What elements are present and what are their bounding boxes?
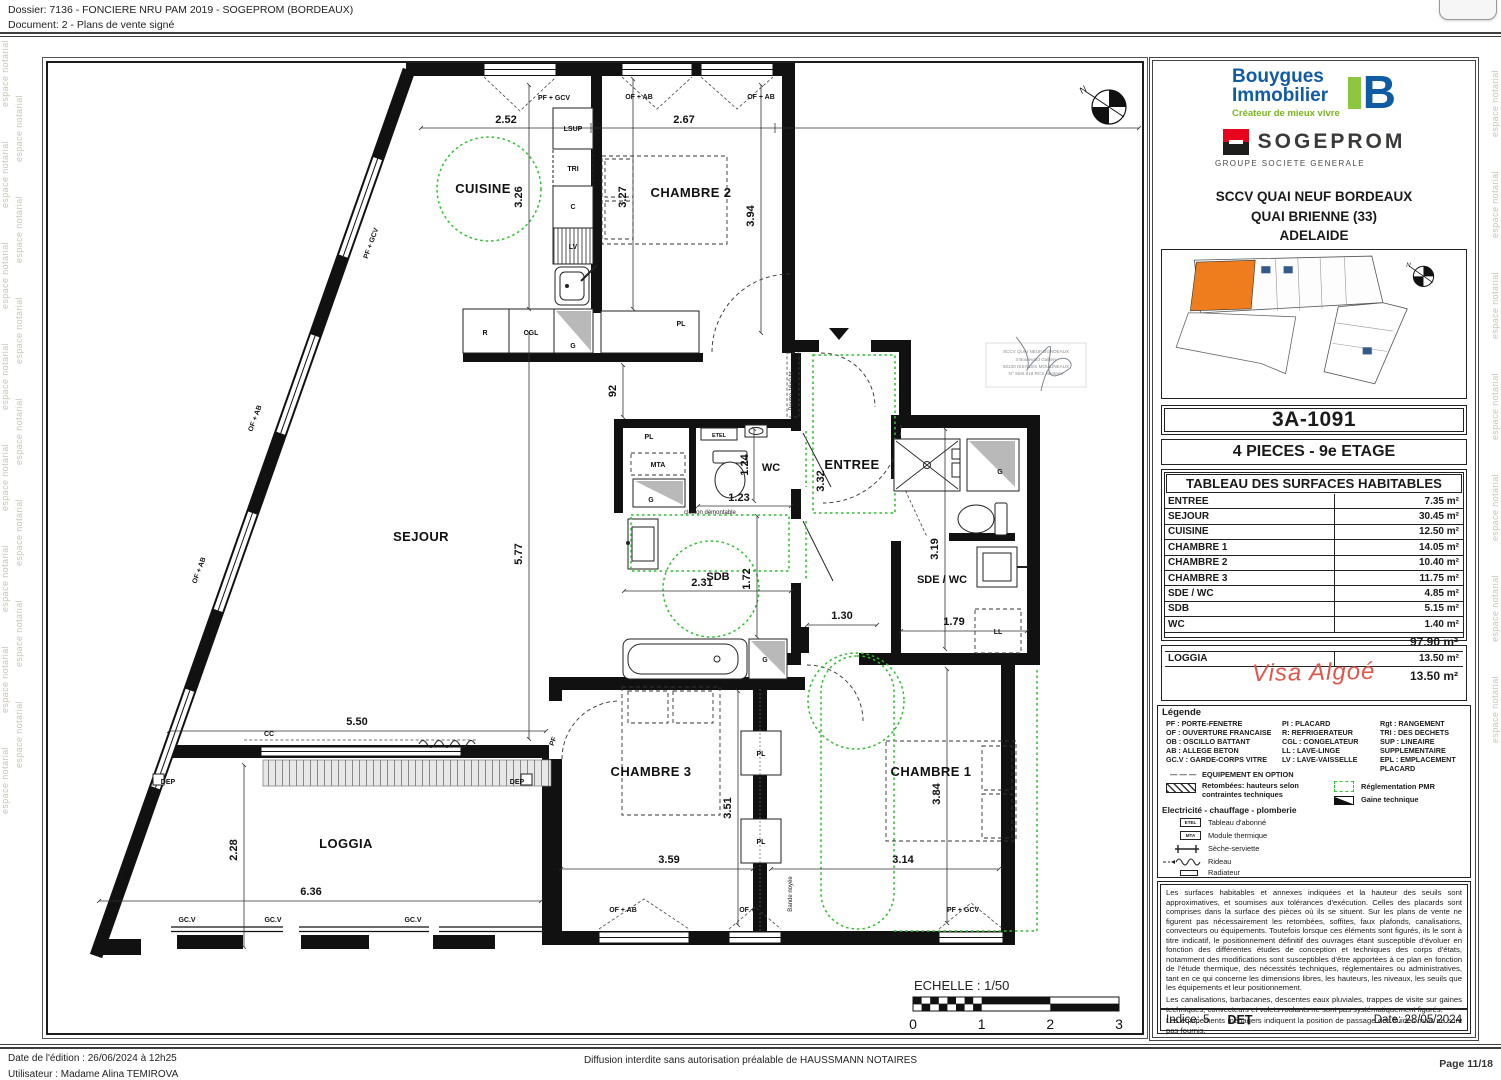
- svg-text:N: N: [1406, 262, 1411, 269]
- highlighted-unit: [1190, 260, 1255, 311]
- document-line: Document: 2 - Plans de vente signé: [8, 18, 353, 33]
- scale-label: ECHELLE : 1/50: [914, 978, 1009, 993]
- legal-paragraph-1: Les surfaces habitables et annexes indiq…: [1166, 888, 1462, 993]
- bouygues-name-2: Immobilier: [1232, 86, 1340, 105]
- equipment-label: C: [570, 204, 575, 211]
- sogeprom-logo: SOGEPROM: [1161, 129, 1467, 155]
- watermark-column-left1: espace notarial espace notarial espace n…: [1, 40, 10, 814]
- opening-label: OF + AB: [625, 94, 653, 101]
- watermark-text: espace notarial: [15, 95, 24, 162]
- promoter-stamp: SCCV QUAI NEUF BORDEAUX 3 Boulevard Gall…: [986, 337, 1086, 391]
- equipment-label: G: [997, 469, 1003, 476]
- watermark-text: espace notarial: [1491, 171, 1500, 238]
- footer-separator-thin: [0, 1044, 1501, 1045]
- dim-label: 1.23: [728, 492, 749, 504]
- opening-label: OF + AB: [248, 404, 264, 432]
- option-dashes: — — —: [1170, 770, 1196, 779]
- viewer-corner-button[interactable]: [1439, 0, 1497, 20]
- project-line-2: QUAI BRIENNE (33): [1161, 207, 1467, 227]
- opening-label: PF + GCV: [363, 227, 381, 260]
- opening-label: OF + AB: [739, 907, 767, 914]
- scale-bar: ECHELLE : 1/50 0 1 2 3: [909, 978, 1123, 1032]
- watermark-text: espace notarial: [15, 297, 24, 364]
- watermark-text: espace notarial: [1, 343, 10, 410]
- room-label-loggia: LOGGIA: [319, 836, 373, 851]
- room-label-wc: WC: [762, 462, 780, 474]
- dim-label: 2.67: [673, 114, 694, 126]
- project-line-1: SCCV QUAI NEUF BORDEAUX: [1161, 187, 1467, 207]
- table-row: SDB5.15 m²: [1165, 602, 1463, 617]
- scale-tick: 3: [1115, 1016, 1123, 1032]
- equipment-label: PL: [757, 751, 767, 758]
- room-label-sdb: SDB: [706, 571, 729, 583]
- room-label-chambre1: CHAMBRE 1: [891, 764, 972, 779]
- table-row: SDE / WC4.85 m²: [1165, 586, 1463, 601]
- header-separator-thin: [0, 36, 1501, 37]
- footer-diffusion: Diffusion interdite sans autorisation pr…: [0, 1055, 1501, 1066]
- equipment-label: TRI: [567, 166, 578, 173]
- room-label-chambre2: CHAMBRE 2: [651, 185, 732, 200]
- legend-retombees: Retombées: hauteurs selon: [1202, 781, 1299, 790]
- opening-label: OF + AB: [609, 907, 637, 914]
- table-row: CUISINE12.50 m²: [1165, 525, 1463, 540]
- opening-label: OF + AB: [747, 94, 775, 101]
- dim-label: 1.30: [831, 610, 852, 622]
- dim-label: 1.79: [943, 616, 964, 628]
- legend-gaine: Gaine technique: [1361, 795, 1419, 804]
- dim-label: 3.51: [722, 797, 734, 818]
- dim-label: 2.28: [228, 839, 240, 860]
- dim-label: 3.94: [745, 204, 757, 226]
- lot-code-box: 3A-1091: [1161, 405, 1467, 435]
- compass-icon: N: [1077, 83, 1126, 124]
- etel-icon: ETEL: [1180, 818, 1201, 827]
- visa-stamp: Visa Algoé: [1252, 658, 1376, 688]
- dossier-line: Dossier: 7136 - FONCIERE NRU PAM 2019 - …: [8, 3, 353, 18]
- watermark-text: espace notarial: [1, 747, 10, 814]
- dim-label: 5.77: [513, 543, 525, 564]
- dim-label: 1.24: [739, 453, 751, 475]
- bouygues-logo: Bouygues Immobilier Créateur de mieux vi…: [1161, 67, 1467, 119]
- watermark-text: espace notarial: [1, 646, 10, 713]
- dim-label: 3.59: [658, 854, 679, 866]
- watermark-text: espace notarial: [1491, 676, 1500, 743]
- opening-label: OF + AB: [192, 556, 208, 584]
- key-plan-drawing: N: [1162, 250, 1466, 398]
- room-label-sejour: SEJOUR: [393, 529, 449, 544]
- key-plan-thumbnail: N: [1161, 249, 1467, 399]
- dim-label: 3.84: [931, 782, 943, 804]
- dim-label: 3.14: [892, 854, 914, 866]
- radiateur-icon: [1180, 870, 1198, 876]
- retombees-icon: [1166, 783, 1196, 793]
- legal-box: Les surfaces habitables et annexes indiq…: [1157, 881, 1471, 1034]
- visa-box: Visa Algoé: [1161, 645, 1467, 701]
- floor-plan-drawing: 2.52 2.67 3.26 3.27 3.94 5.77 92 1.24 1.…: [48, 63, 1146, 1037]
- surface-table: TABLEAU DES SURFACES HABITABLES ENTREE7.…: [1161, 469, 1467, 641]
- table-row: CHAMBRE 114.05 m²: [1165, 540, 1463, 555]
- scale-tick: 2: [1046, 1016, 1054, 1032]
- dim-label: 1.72: [741, 568, 753, 589]
- equipment-label: CC: [264, 731, 274, 738]
- north-label: N: [1077, 83, 1088, 95]
- equipment-label: G: [648, 497, 654, 504]
- watermark-text: espace notarial: [1491, 373, 1500, 440]
- table-row: CHAMBRE 210.40 m²: [1165, 556, 1463, 571]
- dim-label: 3.32: [815, 470, 827, 491]
- project-line-3: ADELAIDE: [1161, 226, 1467, 246]
- rideau-icon: [1162, 856, 1204, 867]
- dim-label: 6.36: [300, 886, 321, 898]
- plan-frame: 2.52 2.67 3.26 3.27 3.94 5.77 92 1.24 1.…: [42, 57, 1148, 1039]
- date-value: Date: 28/05/2024: [1374, 1014, 1462, 1026]
- legend-electricite: Electricité - chauffage - plomberie: [1162, 805, 1297, 815]
- equipment-label: PL: [677, 321, 687, 328]
- footer-separator: [0, 1047, 1501, 1049]
- equipment-label: DEP: [161, 779, 176, 786]
- watermark-column-right: espace notarial espace notarial espace n…: [1491, 70, 1500, 743]
- pmr-icon: [1334, 781, 1354, 792]
- railing-label: GC.V: [404, 917, 421, 924]
- equipment-label: DEP: [510, 779, 525, 786]
- bouygues-name-1: Bouygues: [1232, 67, 1340, 86]
- watermark-text: espace notarial: [1, 444, 10, 511]
- watermark-text: espace notarial: [1, 545, 10, 612]
- legend-col2: PI : PLACARDR: REFRIGERATEURCGL : CONGEL…: [1282, 719, 1358, 764]
- sogeprom-name: SOGEPROM: [1258, 130, 1406, 154]
- project-name: SCCV QUAI NEUF BORDEAUX QUAI BRIENNE (33…: [1161, 187, 1467, 246]
- watermark-text: espace notarial: [1491, 474, 1500, 541]
- lot-code: 3A-1091: [1272, 408, 1356, 432]
- legend-mta: Module thermique: [1208, 831, 1267, 840]
- legend-retombees2: contraintes techniques: [1202, 790, 1283, 799]
- lot-type: 4 PIECES - 9e ETAGE: [1233, 443, 1395, 461]
- header-separator: [0, 32, 1501, 34]
- watermark-text: espace notarial: [1491, 272, 1500, 339]
- kitchen-fixtures: [437, 108, 699, 353]
- dim-label: 3.26: [513, 186, 525, 207]
- indice-value: Indice: 5: [1166, 1014, 1209, 1026]
- opening-label: PF + GCV: [538, 95, 570, 102]
- equipment-label: LV: [569, 244, 578, 251]
- note-label: Bande noyée: [788, 876, 794, 912]
- watermark-text: espace notarial: [1, 242, 10, 309]
- dim-label: 3.19: [929, 538, 941, 559]
- room-label-entree: ENTREE: [824, 457, 879, 472]
- equipment-label: LSUP: [564, 126, 583, 133]
- societe-generale-square-icon: [1223, 129, 1249, 155]
- plan-frame-inner: 2.52 2.67 3.26 3.27 3.94 5.77 92 1.24 1.…: [46, 61, 1144, 1035]
- legend-option: EQUIPEMENT EN OPTION: [1202, 770, 1294, 779]
- table-row: CHAMBRE 311.75 m²: [1165, 571, 1463, 586]
- watermark-text: espace notarial: [15, 600, 24, 667]
- table-row: ENTREE7.35 m²: [1165, 494, 1463, 509]
- legend-title: Légende: [1162, 707, 1201, 718]
- watermark-text: espace notarial: [15, 499, 24, 566]
- lot-type-box: 4 PIECES - 9e ETAGE: [1161, 439, 1467, 465]
- bouygues-mark-icon: B: [1348, 74, 1396, 111]
- legend-col1: PF : PORTE-FENETREOF : OUVERTURE FRANCAI…: [1166, 719, 1271, 764]
- table-row: WC1.40 m²: [1165, 617, 1463, 632]
- sogeprom-group-line: GROUPE SOCIETE GENERALE: [1215, 159, 1467, 168]
- watermark-text: espace notarial: [15, 398, 24, 465]
- room-label-sde-wc: SDE / WC: [917, 574, 967, 586]
- railing-label: GC.V: [178, 917, 195, 924]
- table-row: SEJOUR30.45 m²: [1165, 509, 1463, 524]
- legend-rideau: Rideau: [1208, 857, 1231, 866]
- equipment-label: G: [570, 343, 576, 350]
- equipment-label: ETEL: [712, 433, 727, 439]
- equipment-label: MTA: [651, 462, 666, 469]
- title-block-inner: Bouygues Immobilier Créateur de mieux vi…: [1152, 60, 1476, 1038]
- watermark-text: espace notarial: [1, 141, 10, 208]
- dim-label: 2.52: [495, 114, 516, 126]
- surface-table-title: TABLEAU DES SURFACES HABITABLES: [1166, 474, 1462, 493]
- logos-section: Bouygues Immobilier Créateur de mieux vi…: [1161, 67, 1467, 185]
- legend-box: Légende PF : PORTE-FENETREOF : OUVERTURE…: [1157, 705, 1471, 878]
- equipment-label: G: [762, 657, 768, 664]
- det-label: DET: [1227, 1013, 1252, 1027]
- equipment-label: LL: [994, 629, 1003, 636]
- room-label-chambre3: CHAMBRE 3: [611, 764, 692, 779]
- watermark-text: espace notarial: [1491, 575, 1500, 642]
- note-label: Poutre 16x0 ht: [789, 371, 795, 410]
- bouygues-tagline: Créateur de mieux vivre: [1232, 108, 1340, 119]
- equipment-label: PL: [757, 839, 767, 846]
- legend-seche: Sèche-serviette: [1208, 844, 1259, 853]
- document-page: Dossier: 7136 - FONCIERE NRU PAM 2019 - …: [0, 0, 1501, 1080]
- mta-icon: MTA: [1180, 831, 1201, 840]
- indice-row: Indice: 5 DET Date: 28/05/2024: [1161, 1008, 1467, 1030]
- watermark-text: espace notarial: [1491, 70, 1500, 137]
- page-number: Page 11/18: [1439, 1058, 1493, 1070]
- gaine-icon: [1334, 796, 1354, 805]
- equipment-label: CGL: [524, 330, 540, 337]
- document-header: Dossier: 7136 - FONCIERE NRU PAM 2019 - …: [8, 3, 353, 32]
- scale-tick: 1: [978, 1016, 986, 1032]
- watermark-text: espace notarial: [15, 196, 24, 263]
- equipment-label: PL: [645, 434, 655, 441]
- watermark-text: espace notarial: [1, 40, 10, 107]
- title-block-panel: Bouygues Immobilier Créateur de mieux vi…: [1149, 57, 1479, 1041]
- dim-label: 92: [607, 385, 619, 397]
- legend-etel: Tableau d'abonné: [1208, 818, 1266, 827]
- scale-tick: 0: [909, 1016, 917, 1032]
- seche-serviette-icon: [1172, 844, 1202, 854]
- legend-pmr: Réglementation PMR: [1361, 782, 1435, 791]
- railing-label: GC.V: [264, 917, 281, 924]
- legend-radiateur: Radiateur: [1208, 868, 1240, 877]
- watermark-column-left2: espace notarial espace notarial espace n…: [15, 95, 24, 768]
- dim-label: 5.50: [346, 716, 367, 728]
- legend-col3: Rgt : RANGEMENTTRI : DES DECHETSSUP : LI…: [1380, 719, 1456, 773]
- opening-label: PF + GCV: [947, 907, 979, 914]
- stamp-line: SCCV QUAI NEUF BORDEAUX: [1003, 349, 1069, 354]
- room-label-cuisine: CUISINE: [455, 181, 511, 196]
- equipment-label: R: [482, 330, 487, 337]
- stamp-line: 92130 ISSY LES MOULINEAUX: [1003, 364, 1069, 369]
- watermark-text: espace notarial: [15, 701, 24, 768]
- note-label: cloison démontable: [684, 510, 736, 516]
- thumbnail-compass-icon: N: [1406, 262, 1433, 286]
- footer-user: Utilisateur : Madame Alina TEMIROVA: [8, 1067, 178, 1080]
- dim-label: 3.27: [617, 186, 629, 207]
